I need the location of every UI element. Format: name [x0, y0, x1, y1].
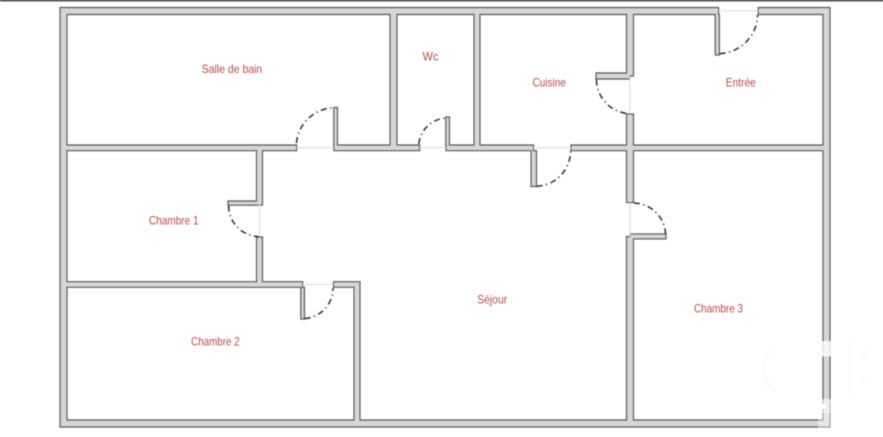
svg-text:Chambre 3: Chambre 3	[694, 301, 743, 315]
svg-text:Chambre 1: Chambre 1	[149, 214, 199, 228]
svg-text:Entrée: Entrée	[726, 75, 756, 89]
svg-text:Cuisine: Cuisine	[532, 75, 566, 89]
svg-text:Séjour: Séjour	[477, 293, 507, 307]
svg-text:Salle de bain: Salle de bain	[202, 62, 263, 76]
svg-text:Chambre 2: Chambre 2	[191, 335, 240, 349]
svg-text:Wc: Wc	[423, 50, 439, 64]
